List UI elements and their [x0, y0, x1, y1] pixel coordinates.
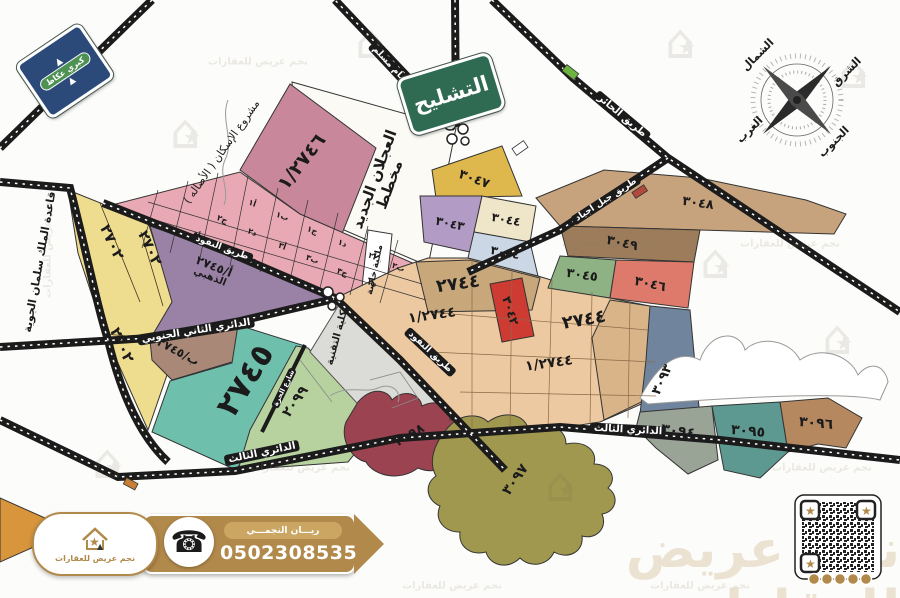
sign-okaz-text: كبري عكاظ	[37, 49, 93, 92]
plot-label-3096: ٣٠٩٦	[798, 415, 833, 433]
watermark-text: نجم عريض للعقارات	[250, 463, 350, 474]
watermark-text: نجم عريض للعقارات	[740, 239, 840, 250]
phone-icon: ☎	[164, 517, 214, 567]
watermark-logo-icon	[545, 465, 593, 513]
contact-badge: ★ ▲ نجم عريض للعقارات ☎ ريـــان النجمـــ…	[24, 508, 364, 576]
marker-white	[512, 141, 528, 156]
watermark-text: نجم عريض للعقارات	[208, 57, 308, 68]
contact-ribbon-tip	[354, 514, 384, 574]
qr-code: ★ ★ ★	[794, 494, 884, 590]
watermark-logo-icon	[92, 442, 140, 490]
agent-name: ريـــان النجمـــي	[224, 522, 342, 539]
qr-code-svg: ★ ★ ★	[794, 494, 884, 586]
watermark-text: نجم عريض للعقارات	[402, 581, 502, 592]
watermark-text: نجم عريض للعقارات	[772, 463, 872, 474]
svg-text:★: ★	[861, 504, 872, 518]
map-stage: نجم عريض للعقارات نجم عريض للعقارات نجم …	[0, 0, 900, 598]
svg-text:▲: ▲	[97, 542, 104, 551]
watermark-logo-icon	[665, 22, 713, 70]
compass-rose	[753, 56, 841, 144]
svg-text:★: ★	[805, 557, 816, 571]
company-name: نجم عريض للعقارات	[55, 554, 135, 563]
plot-label-3095: ٣٠٩٥	[730, 423, 765, 441]
svg-text:★: ★	[805, 504, 816, 518]
company-pill: ★ ▲ نجم عريض للعقارات	[32, 512, 158, 576]
sign-tashleeh-text: التشليح	[411, 71, 492, 117]
arrow-up-icon: ▲	[67, 76, 76, 85]
phone-number: 0502308535	[220, 542, 346, 564]
qr-social-icons	[809, 574, 872, 585]
watermark-logo-icon	[822, 318, 870, 366]
company-logo-icon: ★ ▲	[78, 525, 112, 553]
watermark-logo-icon	[170, 112, 218, 160]
